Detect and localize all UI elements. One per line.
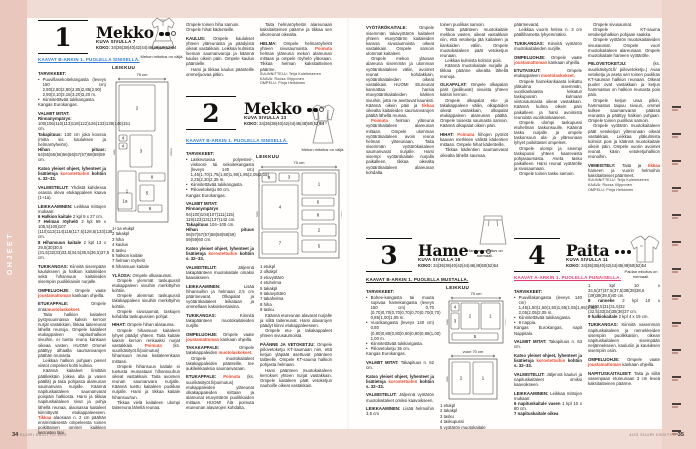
section-number: 3	[366, 238, 412, 272]
page-gutter	[347, 18, 350, 429]
sidebar-vertical-label: OHJEET	[7, 232, 14, 275]
koko-label: KOKO:	[96, 45, 111, 50]
paragraph-keyword: VALMISTELUT: Jäljennä vyötärön muotokait…	[366, 392, 434, 402]
paragraph-keyword: TUKIKANGAS: Kiinnitä sisempään kauluksee…	[38, 264, 106, 285]
koko-line: KOKO: 34(36)38(40)42(44)46(48)50(52)54	[244, 121, 324, 126]
paragraph-keyword: TUKIKANGAS: Kiinnitä vasemman napituskai…	[588, 322, 660, 353]
text-column: 1 etukpl2 olkakpl3 etuvyötärö4 etuhelma5…	[260, 264, 332, 388]
difficulty-dot	[171, 31, 176, 36]
paragraph: Taita helmaröyhelön alareunaan kaksitait…	[260, 22, 332, 37]
paragraph-keyword: NAPITUSKAITALEET: Taita ja silitä vasemp…	[588, 371, 660, 386]
kaava-link: KAAVAT B-ARKIN 1. PUOLELLA SINISELLÄ.	[186, 138, 288, 143]
edge-marker	[672, 322, 686, 331]
piece-number: 1a	[123, 199, 128, 204]
paragraph: Ompele ulompi ja sisempi taskupussi yhte…	[514, 146, 582, 172]
cutting-diagram: 75 cm42135taitehulpio	[446, 291, 506, 345]
paragraph-keyword: VALMISTELUT: Yhdistä kahdessa osassa ole…	[38, 185, 106, 200]
edge-marker	[672, 295, 686, 304]
paragraph: Ompele sivusaumat, taskujen kohdalta tas…	[112, 309, 180, 319]
paragraph: Ompele hihat kädenteille.	[186, 27, 254, 32]
leikkuu-label: LEIKKUU	[446, 285, 469, 290]
paragraph: Hihan pituus 56(57)57(57)58(58)58(59) 59…	[186, 227, 254, 242]
paragraph-keyword: ETUTASKUT: Ompele etukappaleen muotolask…	[514, 68, 582, 78]
fold-edge-label: taite	[256, 211, 259, 217]
paragraph-keyword: VALMIIT MITAT: Takapituus n. 62 cm.	[366, 360, 434, 370]
paragraph: Leikkaa vuorin helma n. 3 cm päällihamet…	[514, 27, 582, 37]
cutting-diagram: vuori 70 cm21taite	[446, 349, 506, 401]
paragraph: Tikkaa kädentien saumanvarat oikealta lä…	[440, 147, 508, 157]
paragraph-keyword: VALMISTELUT: Jäljennä takapäänteen muoto…	[186, 265, 254, 280]
leikkuu-label: LEIKKUU	[112, 65, 135, 70]
section-number: 2	[186, 96, 236, 130]
sidebar-band: OHJEET	[0, 0, 27, 449]
difficulty-dot	[615, 250, 619, 254]
paragraph: 9 halkiokaitale 2 kpl 4 x 19 cm.	[588, 314, 660, 319]
paragraph: Ompele hamekankaasta leikattu yläkulma s…	[514, 79, 582, 120]
paragraph-keyword: HELMA: Ompele helmaröyhelöt yhteen sivus…	[260, 41, 332, 72]
difficulty-dots	[158, 21, 177, 40]
paragraph-keyword: Katso yleiset ohjeet, lyhenteet ja lisät…	[186, 246, 254, 261]
difficulty-dot	[159, 32, 163, 36]
edge-marker	[672, 214, 686, 223]
text-column: Ompele sivusaumat.Ompele KT-sauma vetoke…	[588, 22, 660, 192]
paragraph-keyword: LEIKKAAMINEN: Lisää helmoihin 3,5 cm	[366, 406, 434, 416]
diagram-width-label: vuori 70 cm	[463, 349, 484, 354]
page-footer-right: 4/23 SUURI KÄSITYÖ 35	[629, 432, 684, 438]
legend-item: 8 hihansuun kaitale	[112, 264, 180, 269]
paragraph-keyword: KAULUS: Ompele kaulukset yhteen yläreuna…	[186, 36, 254, 67]
paragraph-keyword: TUKIKANGAS: Kiinnitä takapäänteen muotok…	[186, 313, 254, 328]
paragraph-keyword: TAKAKAPPALE: Ompele takakappaleiden muot…	[186, 345, 254, 355]
credits-line: OMPELU: Pinja Heikkinen	[260, 81, 332, 86]
paragraph-keyword: VIIMEISTELY: Taita ja tikkaa hameen ja v…	[588, 163, 660, 178]
paragraph: Kangas Eurokangas.	[38, 102, 106, 107]
bullet-item: Kiinnitettävää tukikangasta.	[38, 97, 106, 102]
text-column: Taita helmaröyhelön alareunaan kaksitait…	[260, 22, 332, 86]
difficulty-dots	[306, 97, 325, 116]
paragraph: Ompele etu- ja takakappaleet yhteen sivu…	[260, 328, 332, 338]
paragraph: Harsi ja tikkaa kaulus päänteille ommelj…	[186, 67, 254, 77]
bullet-item: 9 nappia.	[514, 320, 582, 325]
paragraph: Taita päänteen muotokaitale mekkoa vaste…	[440, 27, 508, 58]
edge-marker	[672, 241, 686, 250]
fit-caption-4: Paidan mitoitus on normaali.	[618, 270, 664, 280]
koko-line: KOKO: 34(36)38(40)42(44)46(48)50(52)54	[566, 263, 646, 268]
edge-marker	[672, 106, 686, 115]
difficulty-dot	[319, 107, 324, 112]
paragraph: Ompele muotokaitaleet takakappaleiden pä…	[186, 356, 254, 371]
paragraph: Ompele ylemmät taskupussit etukappaleen …	[112, 278, 180, 293]
paragraph-keyword: Katso yleiset ohjeet, lyhenteet ja lisät…	[366, 374, 434, 389]
edge-marker	[672, 349, 686, 358]
bullet-item: Puuvillasekoitekangasta (leveys 150 cm) …	[38, 77, 106, 98]
difficulty-dot	[627, 250, 631, 254]
difficulty-dot	[313, 108, 317, 112]
leikkuu-label: LEIKKUU	[256, 154, 279, 159]
paragraph: Ompele ulompi taskupussi etuhelman tasku…	[514, 120, 582, 146]
paragraph: Rinnanympärys: 100(105)110(113)118(122)1…	[38, 116, 106, 131]
paragraph: Käännä muotokaitale nurjalle ja tikkaa p…	[440, 63, 508, 78]
paragraph: 8 Hihansuun kaitale 2 kpl 13 x 29,5(30)3…	[38, 240, 106, 261]
magazine-spread: OHJEET Mekon mitoitus on väljä. Mekon mi…	[0, 0, 696, 449]
paragraph: Ompele vyötärön muotokaitaleen päät veto…	[588, 123, 660, 159]
selvage-edge-label: hulpio	[169, 148, 172, 156]
paragraph: Ompele vyötärön muotokaitaleiden sivusau…	[588, 37, 660, 58]
paragraph: Tikkaa vielä kaitaleen ulompi taitereuna…	[112, 400, 180, 410]
bullet-item: Puuvillakangasta (leveys 140 cm) 1,45(1,…	[514, 295, 582, 316]
edge-marker	[672, 187, 686, 196]
kuva-sivulla: KUVA SIVULLA 13	[244, 115, 286, 120]
paragraph-keyword: PIILOVETOKETJU: (ks. suurikäsityöt.fi/ p…	[588, 61, 660, 97]
text-column: TARVIKKEET:Puuvillakangasta (leveys 140 …	[514, 286, 582, 416]
cutting-diagram: 75 cm23441851a6taitehulpio	[112, 72, 172, 224]
paragraph-keyword: Katso yleiset ohjeet, lyhenteet ja lisät…	[38, 166, 106, 181]
edge-marker	[672, 133, 686, 142]
paragraph: 8 ranneke 2 kpl 10 x 30(30,5)31(31,5)32 …	[588, 298, 660, 313]
text-column: Ompele toinen hiha samoin.Ompele hihat k…	[186, 22, 254, 77]
paragraph: Ompele alemmat taskupussit takakappaleen…	[112, 293, 180, 308]
paragraph: Hihan pituus: 54(55)55(56)56(56)57(57)58…	[38, 147, 106, 162]
paragraph: 1 kpl 10 x 34,5(37)37,5(37,5)38(38)38,5 …	[588, 283, 660, 298]
page-number-left: 34	[12, 432, 18, 438]
diagram-width-label: 70 cm	[294, 160, 306, 165]
difficulty-dot	[307, 108, 311, 112]
paragraph-keyword: VALMIIT MITAT: Takapituus n. 63 cm.	[514, 339, 582, 349]
kaava-link: KAAVAT B-ARKIN 1. PUOLELLA SINISELLÄ.	[38, 57, 140, 62]
paragraph: Ompele ketjun uraa pitkin, hammastus tai…	[588, 98, 660, 124]
paragraph: Kangas Eurokangas.	[366, 351, 434, 356]
paragraph: Käännä kaitaleet limittäin päällekkäin (…	[38, 368, 106, 435]
width-arrow	[451, 355, 495, 357]
paragraph: Ompele toinen tasku samoin.	[514, 171, 582, 176]
koko-label: KOKO:	[244, 121, 259, 126]
paragraph-keyword: OMPELUOHJE: Ompele vaate joustamattoman …	[38, 288, 106, 298]
koko-label: KOKO:	[566, 263, 581, 268]
paragraph: Kangas Eurokangas, napit Nappitalo.	[514, 325, 582, 335]
kaava-link: KAAVAT B-ARKIN 1. PUOLELLA MUSTALLA.	[366, 277, 468, 282]
bullet-item: Piilovetoketju 60 cm.	[186, 187, 254, 192]
text-column: toinen puolikas samoin.Taita päänteen mu…	[440, 22, 508, 158]
paragraph-keyword: PÄÄNNE JA VETOKETJU: Ompele piilovetoket…	[260, 342, 332, 368]
koko-line: KOKO: 34(36)38(40)42(44)46(48)50(52)54	[418, 263, 498, 268]
page-number-right: 35	[678, 432, 684, 438]
edge-marker	[672, 403, 686, 412]
paragraph: Taita halkion kaitaleet pystysuunnassa k…	[38, 312, 106, 358]
paragraph-keyword: OLKAPALAT: Ompele olkapalan parit (peili…	[440, 82, 508, 97]
bullet-item: Bohee-kangasta tai muuta sopivaa hamekan…	[366, 295, 434, 321]
paragraph: Ompele olkapalat etu- ja takakappaleen v…	[440, 98, 508, 129]
footer-magazine-right: 4/23 SUURI KÄSITYÖ	[629, 432, 676, 437]
paragraph: 7 Helman röyhelö 2 kpl 59 x 105,5(105)10…	[38, 219, 106, 240]
paragraph: Käännä etureunan alavarat nurjalle ja si…	[260, 313, 332, 328]
edge-marker	[672, 160, 686, 169]
paragraph-keyword: ETUKAPPALE: Ompele rintamuotolaskokset.	[38, 301, 106, 311]
bullet-item: Piilovetoketju 35 cm.	[366, 346, 434, 351]
paragraph: Ompele KT-sauma vetoketjuhalkion pohjaan…	[588, 27, 660, 37]
selvage-edge-label: hulpio	[504, 318, 506, 326]
kuva-sivulla: KUVA SIVULLA 18	[418, 257, 460, 262]
kuva-sivulla: KUVA SIVULLA 7	[96, 39, 136, 44]
edge-marker	[672, 376, 686, 385]
paragraph-keyword: LEIKKAAMINEN: Leikkaa mittojen mukaan:	[514, 391, 582, 401]
paragraph: Kangas Eurokangas.	[186, 193, 254, 198]
paragraph-keyword: HIHAT: Poimuta hihojen pyöriöt kaavan me…	[440, 132, 508, 147]
difficulty-dot	[486, 249, 491, 254]
difficulty-dots	[472, 239, 491, 258]
paragraph: Ompele hihansuun kaitaleen lyhyet päädyt…	[112, 328, 180, 364]
difficulty-dot	[474, 250, 478, 254]
paragraph-keyword: LEIKKAAMINEN: Lisää hihansuihin ja helma…	[186, 284, 254, 310]
paragraph-keyword: VYÖTÄRÖKAITALE: Ompele sisemmän takavyöt…	[366, 25, 434, 56]
difficulty-dot	[165, 32, 169, 36]
paragraph: Rinnanympärys 94(100)104(107)111(115) 11…	[186, 206, 254, 221]
paragraph: 6 napituskaitale vasen 1 kpl 10 x 80 cm.	[514, 401, 582, 411]
paragraph: 7 napituskaitale oikea	[514, 411, 582, 416]
paragraph-keyword: OMPELUOHJE: Ompele vaate joustamattoman …	[588, 357, 660, 367]
paragraph: Takapituus: 130 cm joka koossa (mitta si…	[38, 132, 106, 147]
credits-line: OMPELU: Pinja Heikkinen	[588, 188, 660, 193]
koko-line: KOKO: 34(36)38(40)42(44)46(48)50(52)54	[96, 45, 176, 50]
text-column: TARVIKKEET:Bohee-kangasta tai muuta sopi…	[366, 286, 434, 416]
difficulty-dot	[621, 250, 625, 254]
bullet-item: Laskeutuvaa polyesteri-, viskoosi- tai s…	[186, 157, 254, 183]
fold-edge-label: taite	[446, 376, 449, 382]
text-column: päärmevarat.Leikkaa vuorin helma n. 3 cm…	[514, 22, 582, 177]
kaava-link: KAAVAT A-ARKIN 1. PUOLELLA PUNAISELLA.	[514, 275, 621, 280]
bullet-item: Vuorikangasta (leveys 140 cm) 0,80 (0,80…	[366, 320, 434, 341]
width-arrow	[451, 297, 501, 299]
text-column: TARVIKKEET:Laskeutuvaa polyesteri-, visk…	[186, 148, 254, 411]
fit-caption-1: Mekon mitoitus on väljä.	[134, 55, 190, 60]
paragraph-keyword: Katso yleiset ohjeet, lyhenteet ja lisät…	[514, 353, 582, 368]
section-number: 1	[38, 20, 88, 54]
text-column: 1 kpl 10 x 34,5(37)37,5(37,5)38(38)38,5 …	[588, 283, 660, 386]
diagram-width-label: 75 cm	[137, 72, 149, 77]
paragraph: Ompele mekon yläosan alareuna sisemmän j…	[366, 56, 434, 118]
width-arrow	[118, 78, 166, 80]
kuva-sivulla: KUVA SIVULLA 11	[566, 257, 608, 262]
legend-item: 5 vyötärön muotokaitale	[440, 425, 508, 430]
paragraph: Poimuta helman yläreuna vyötärökaitaleen…	[366, 118, 434, 175]
paragraph: Ompele hihansuun kaitale ei tuetusta reu…	[112, 364, 180, 400]
fit-caption-2: Mekon mitoitus on väljä.	[296, 148, 350, 153]
paragraph-keyword: TUKIKANGAS: Kiinnitä vyötärön muotokaita…	[514, 41, 582, 51]
paragraph: Leikkaa halkion pohjaan pienet viistot o…	[38, 358, 106, 368]
edge-marker	[672, 268, 686, 277]
fold-edge-label: taite	[112, 149, 116, 155]
selvage-edge-label: hulpio	[340, 210, 342, 218]
text-column: VYÖTÄRÖKAITALE: Ompele sisemmän takavyöt…	[366, 22, 434, 175]
text-column: TARVIKKEET:Puuvillasekoitekangasta (leve…	[38, 68, 106, 435]
paragraph-keyword: OMPELUOHJE: Ompele vaate joustamattoman …	[186, 332, 254, 342]
diagram-width-label: 75 cm	[471, 291, 483, 296]
section-number: 4	[514, 238, 560, 272]
difficulty-dot	[480, 250, 484, 254]
paragraph-keyword: LEIKKAAMINEN: Leikkaa mittojen mukaan:	[38, 204, 106, 214]
difficulty-dots	[613, 239, 631, 258]
paragraph-keyword: OMPELUOHJE: Ompele vaate joustamattoman …	[514, 55, 582, 65]
text-column: 1 etukpl2 takakpl3 tasku4 taskupussi5 vy…	[440, 403, 508, 430]
width-arrow	[261, 166, 337, 168]
paragraph-keyword: ETUKAPPALE: Poimuta (ks. suurikäsityöt.f…	[186, 374, 254, 410]
paragraph: Harsi päänteen muotokaitaleen kerrokset …	[260, 368, 332, 389]
fold-edge-label: taite	[446, 319, 449, 325]
right-edge-band	[662, 0, 696, 449]
paragraph-keyword: VALMISTELUT: Jäljennä kauluri ja napitus…	[514, 372, 582, 387]
text-column: 1+1a etukpl2 takakpl3 hiha4 kaulus5 task…	[112, 226, 180, 410]
koko-label: KOKO:	[418, 263, 433, 268]
